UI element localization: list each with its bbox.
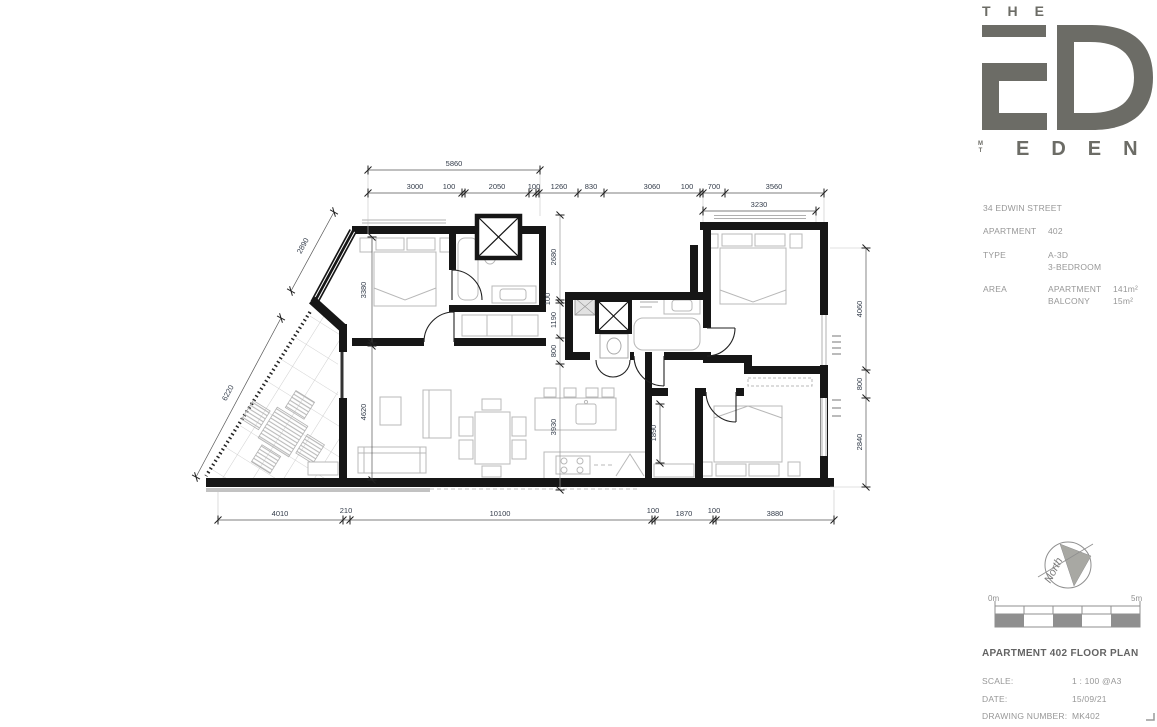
dim-label: 100	[543, 293, 552, 306]
dim-label: 10100	[490, 509, 511, 518]
dim-label: 100	[443, 182, 456, 191]
dim-label: 3230	[751, 200, 768, 209]
north-triangle	[1060, 544, 1091, 586]
dim-label: 1190	[549, 312, 558, 328]
door-bedroom-1	[424, 312, 454, 342]
scale-bar: 0m 5m	[988, 594, 1142, 627]
wardrobe-dashed	[748, 378, 812, 386]
door-laundry-double	[596, 360, 630, 377]
area-label: AREA	[983, 284, 1007, 294]
bed-1	[360, 238, 452, 306]
type-value-2: 3-BEDROOM	[1048, 262, 1101, 272]
dim-label: 100	[647, 506, 660, 515]
dim-label: 3060	[644, 182, 661, 191]
north-arrow: North	[1038, 542, 1093, 588]
dim-label: 3380	[359, 282, 368, 299]
logo-the: THE	[982, 3, 1061, 19]
area-row-value: 15m²	[1113, 296, 1133, 306]
area-row-name: BALCONY	[1048, 296, 1090, 306]
dim-label: 100	[681, 182, 694, 191]
logo-ed-mark	[982, 25, 1153, 130]
dim-label: 2840	[855, 434, 864, 451]
floor-plan-sheet: 5860 3000 100 2050 100 1260 830 3060 100…	[0, 0, 1157, 727]
dim-label: 5860	[446, 159, 463, 168]
apartment-number: 402	[1048, 226, 1063, 236]
dim-label: 2890	[295, 236, 311, 255]
logo-mt-t: T	[978, 148, 983, 155]
logo-mt-m: M	[978, 141, 983, 148]
area-row-value: 141m²	[1113, 284, 1138, 294]
dining-set	[459, 399, 526, 477]
dim-label: 1870	[676, 509, 693, 518]
drawing-number-label: DRAWING NUMBER:	[982, 711, 1067, 721]
bed-2	[706, 234, 802, 304]
dim-label: 800	[549, 345, 558, 358]
logo-mt: M T	[978, 141, 983, 155]
dim-label: 830	[585, 182, 598, 191]
project-address: 34 EDWIN STREET	[983, 203, 1062, 213]
type-label: TYPE	[983, 250, 1006, 260]
logo-eden: EDEN	[1016, 138, 1157, 161]
laundry-appliance	[575, 298, 595, 315]
date-value: 15/09/21	[1072, 694, 1107, 704]
sheet-corner-mark	[1146, 713, 1154, 720]
slab-edge	[206, 488, 430, 492]
apartment-label: APARTMENT	[983, 226, 1036, 236]
sliding-door	[338, 352, 348, 398]
drawing-number-value: MK402	[1072, 711, 1100, 721]
dim-label: 100	[708, 506, 721, 515]
dim-label: 3880	[767, 509, 784, 518]
scale-start-label: 0m	[988, 594, 999, 603]
hall-closet	[654, 464, 694, 477]
floor-plan-drawing: 5860 3000 100 2050 100 1260 830 3060 100…	[0, 0, 1157, 727]
bed-3	[700, 378, 812, 476]
dim-label: 100	[528, 182, 541, 191]
wardrobe	[462, 315, 538, 336]
door-bedroom-2	[707, 328, 735, 356]
area-row-name: APARTMENT	[1048, 284, 1101, 294]
dim-label: 3000	[407, 182, 424, 191]
dim-label: 3930	[549, 419, 558, 436]
dim-label: 1890	[649, 425, 658, 442]
scale-end-label: 5m	[1131, 594, 1142, 603]
drawing-title: APARTMENT 402 FLOOR PLAN	[982, 648, 1138, 659]
type-value-1: A-3D	[1048, 250, 1068, 260]
dim-label: 4060	[855, 301, 864, 318]
dim-label: 3560	[766, 182, 783, 191]
dim-label: 4620	[359, 404, 368, 421]
dim-label: 2050	[489, 182, 506, 191]
dim-label: 700	[708, 182, 721, 191]
scale-label: SCALE:	[982, 676, 1013, 686]
scale-value: 1 : 100 @A3	[1072, 676, 1122, 686]
dim-label: 2680	[549, 249, 558, 266]
dim-label: 4010	[272, 509, 289, 518]
date-label: DATE:	[982, 694, 1007, 704]
planter	[308, 462, 338, 475]
dim-label: 800	[855, 378, 864, 391]
dim-label: 210	[340, 506, 353, 515]
dim-label: 1260	[551, 182, 568, 191]
dim-label: 6220	[220, 383, 236, 402]
